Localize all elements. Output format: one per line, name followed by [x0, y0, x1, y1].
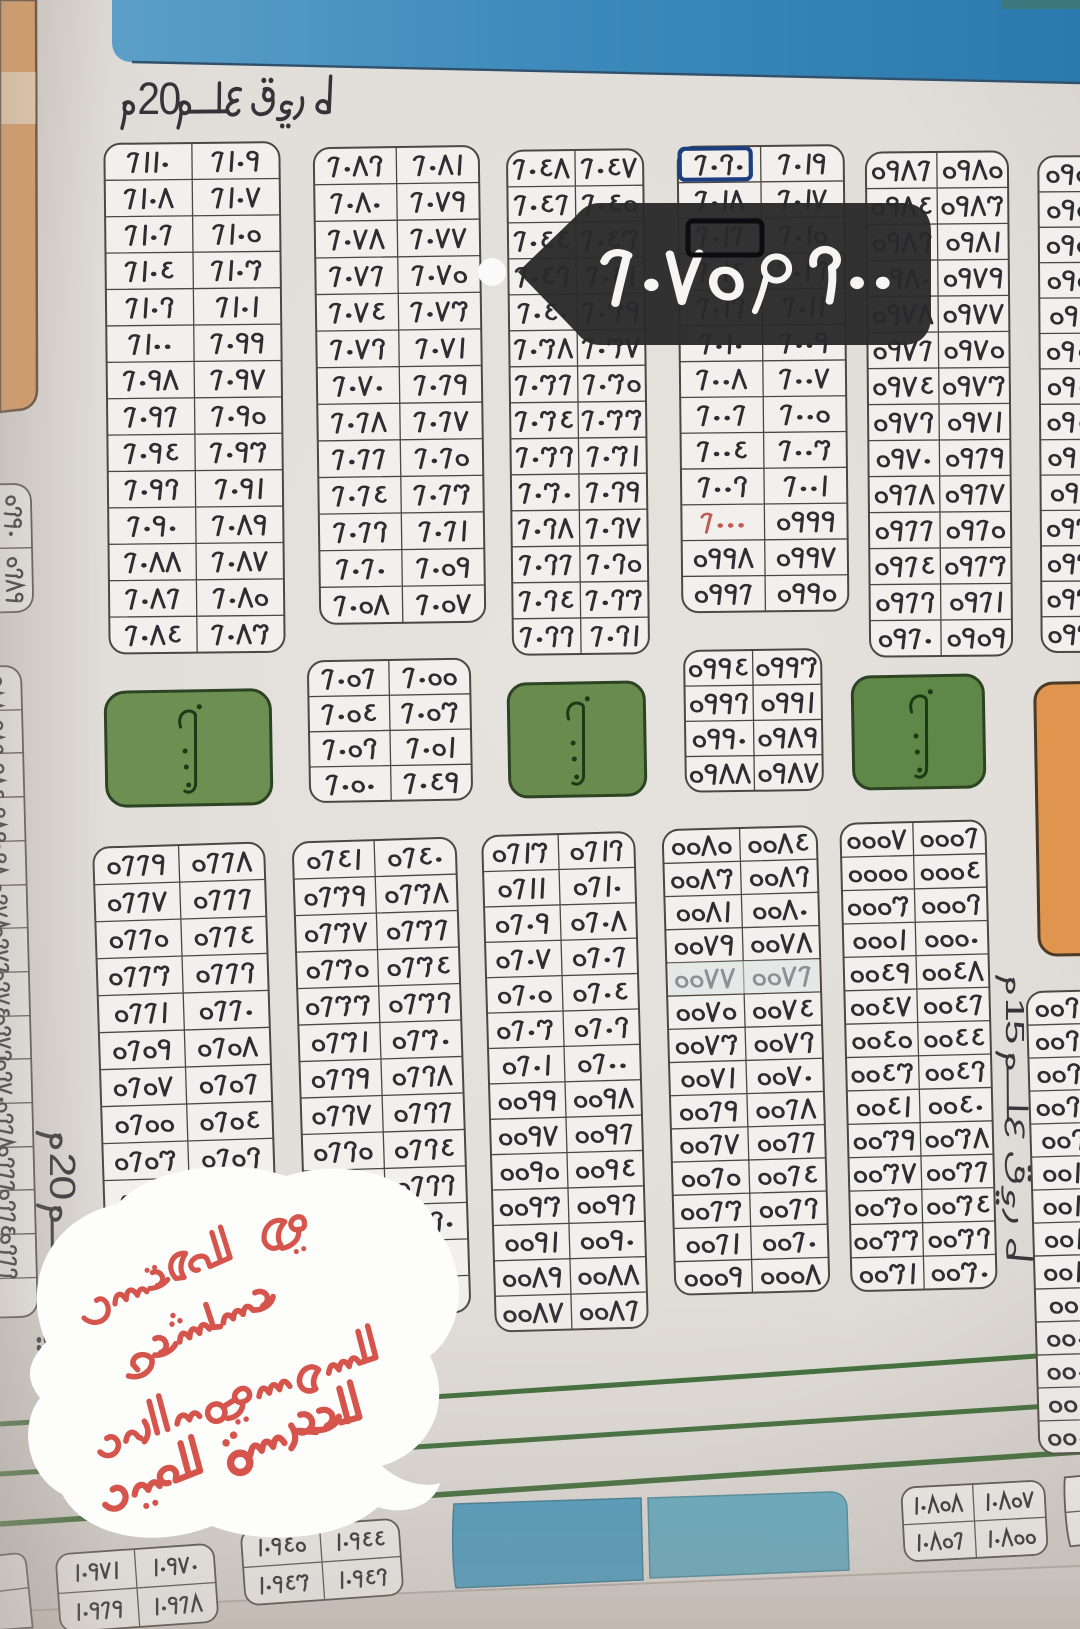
svg-text:20: 20	[137, 74, 180, 125]
svg-text:15: 15	[1000, 997, 1029, 1043]
